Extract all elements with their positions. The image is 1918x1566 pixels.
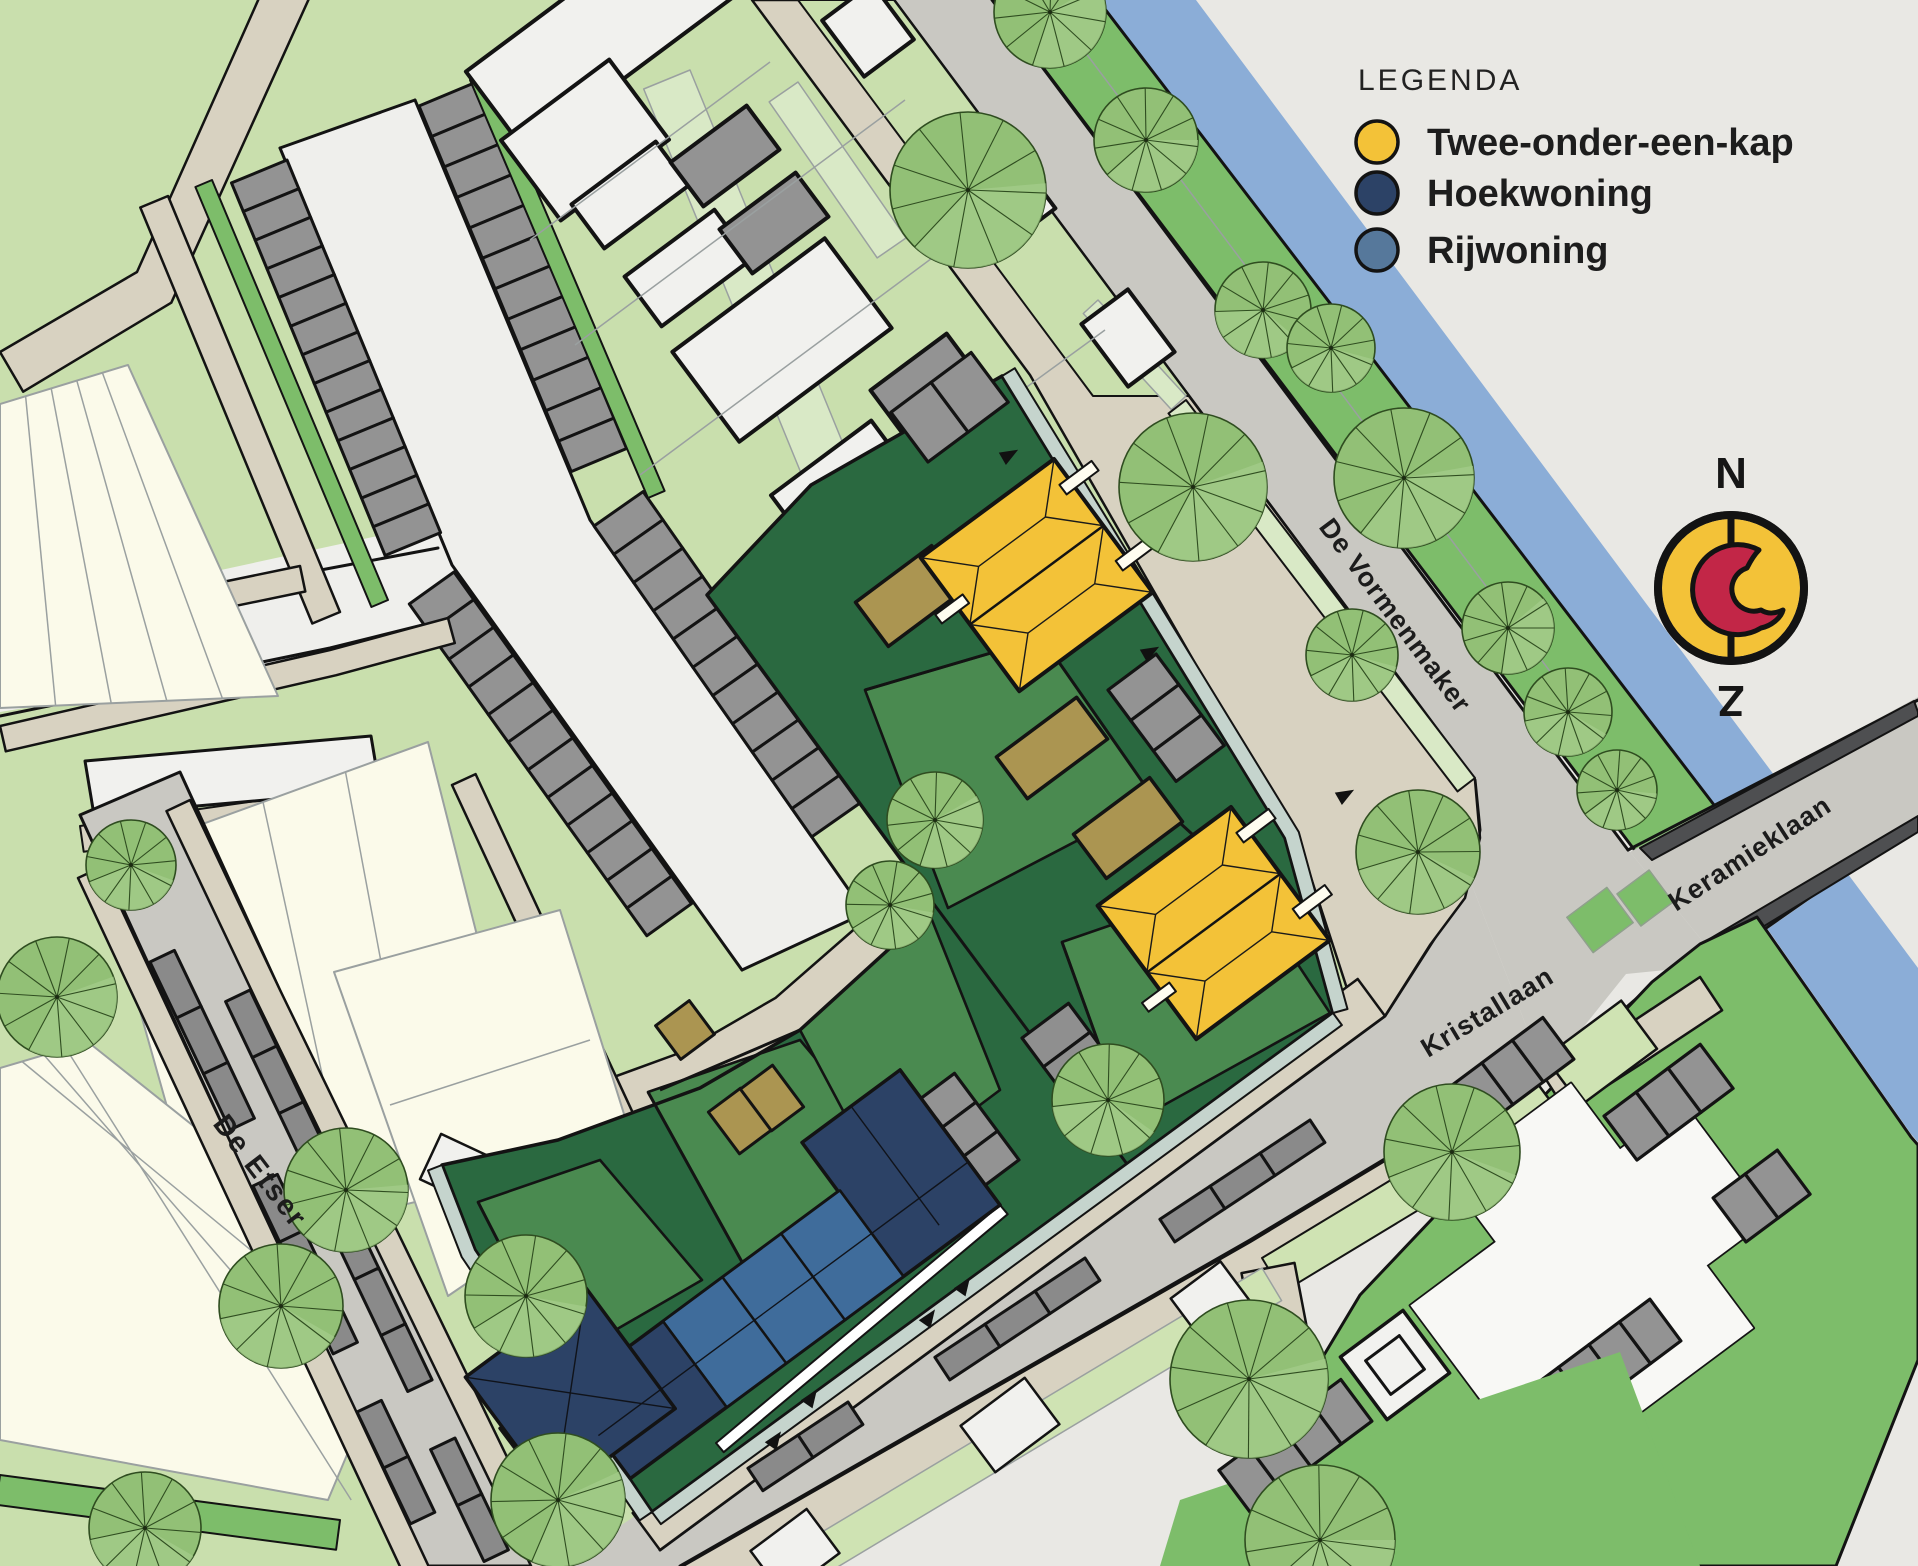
svg-text:Z: Z bbox=[1718, 676, 1745, 725]
svg-text:Rijwoning: Rijwoning bbox=[1427, 230, 1609, 272]
svg-text:LEGENDA: LEGENDA bbox=[1358, 64, 1522, 97]
svg-text:Hoekwoning: Hoekwoning bbox=[1427, 173, 1653, 215]
svg-text:Twee-onder-een-kap: Twee-onder-een-kap bbox=[1427, 122, 1794, 164]
svg-text:N: N bbox=[1715, 449, 1747, 498]
